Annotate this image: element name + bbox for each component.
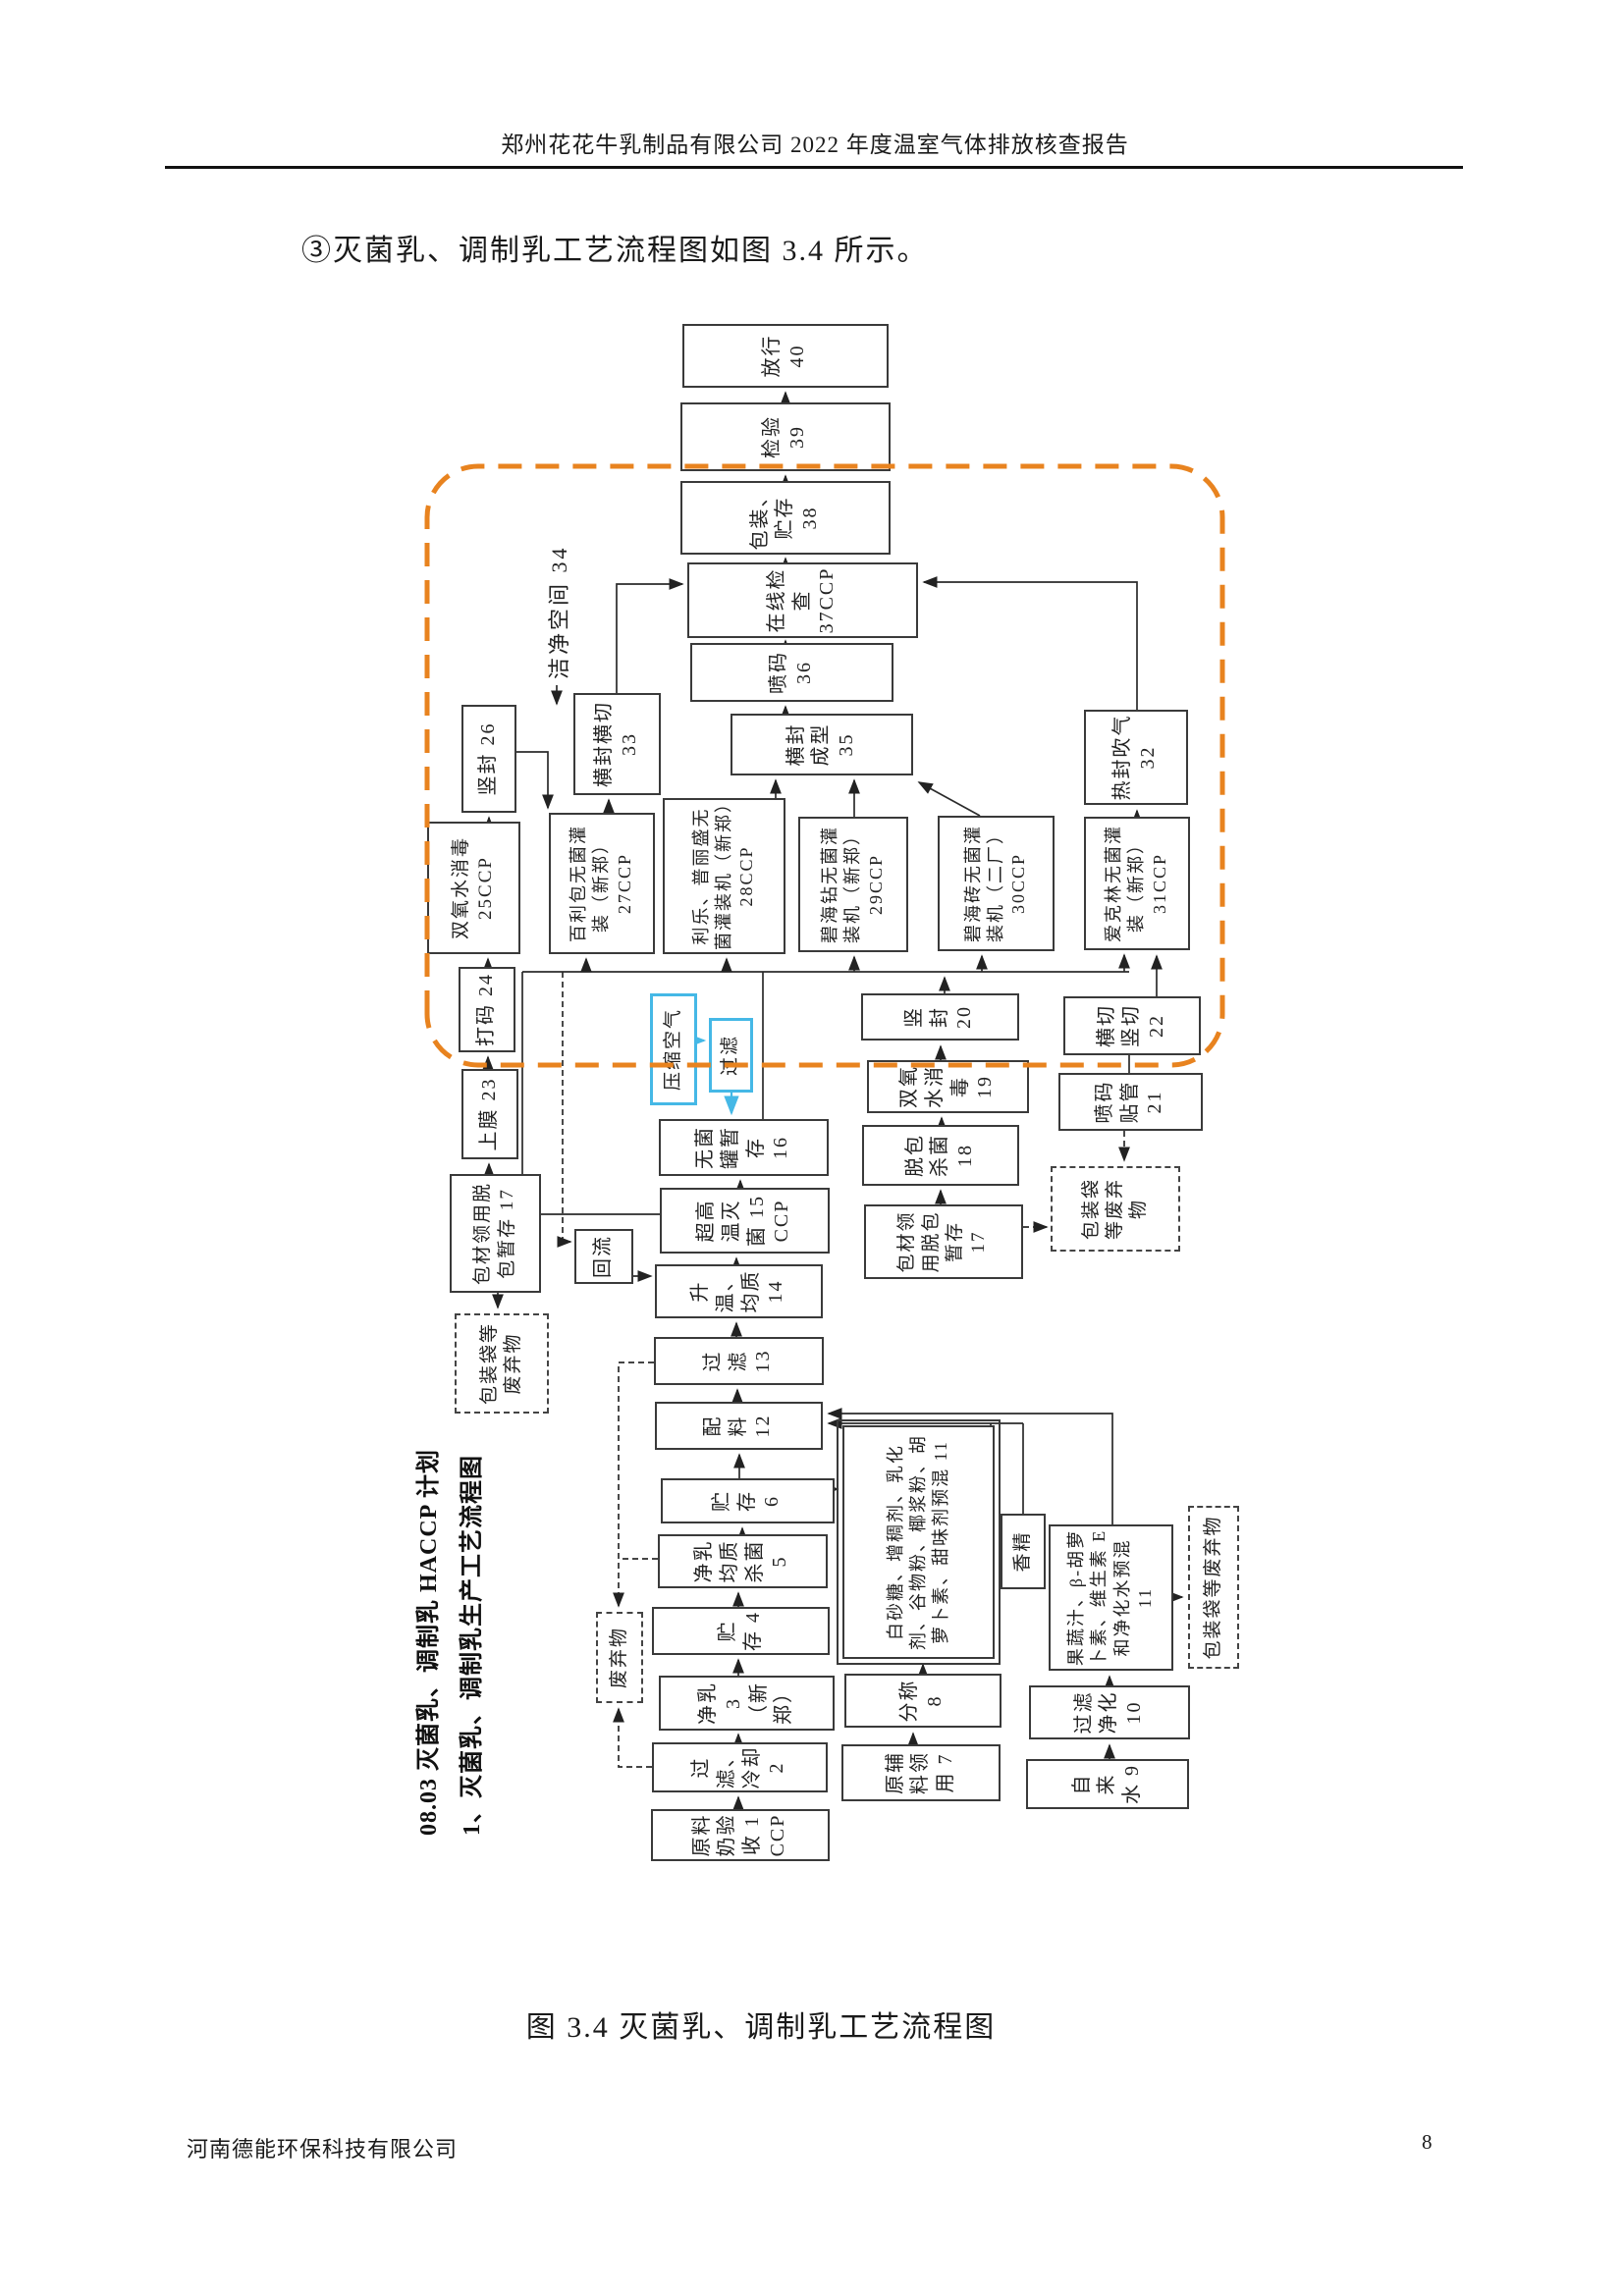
flow-box-release-40: 放行 40 [682,324,889,388]
flow-box-online-check-37: 在线检查 37CCP [687,562,918,638]
footer-page-number: 8 [1422,2130,1433,2155]
flow-box-pack-store-38: 包装、贮存 38 [680,481,891,555]
flow-box-film-on-23: 上膜 23 [461,1069,518,1159]
flow-box-store-4: 贮存 4 [652,1607,830,1655]
flow-box-premix-sugar-11: 白砂糖、增稠剂、乳化剂、谷物粉、椰浆粉、胡萝卜素、甜味剂预混 11 [842,1425,995,1659]
flow-box-waste-bags-left: 包装袋等废弃物 [455,1313,549,1414]
report-page: { "page": { "header": "郑州花花牛乳制品有限公司 2022… [0,0,1624,2296]
flow-box-inkjet-straw-21: 喷码贴管 21 [1058,1073,1203,1131]
flow-box-packmat-store-17-right: 包材领用脱包暂存 17 [864,1204,1023,1279]
flow-box-waste-bags-right: 包装袋等废弃物 [1051,1166,1180,1252]
flow-box-ecolean-fill-31: 爱克林无菌灌装（新郑）31CCP [1084,817,1190,950]
flow-box-packmat-store-17-left: 包材领用脱包暂存 17 [450,1174,541,1293]
flow-box-crosscut-vertcut-22: 横切竖切 22 [1063,996,1201,1055]
footer-company: 河南德能环保科技有限公司 [187,2132,458,2163]
flow-title-line1: 08.03 灭菌乳、调制乳 HACCP 计划 [408,1449,443,1836]
flow-box-bailibao-fill-27: 百利包无菌灌装（新郑）27CCP [549,813,655,954]
flow-box-essence: 香精 [1001,1514,1046,1589]
flow-landscape: 08.03 灭菌乳、调制乳 HACCP 计划 1、灭菌乳、调制乳生产工艺流程图 … [285,324,1257,1895]
flow-box-inspect-39: 检验 39 [680,402,891,471]
flow-box-reflux: 回流 [574,1229,633,1284]
flow-box-aseptic-tank-16: 无菌罐暂存 16 [659,1119,829,1176]
flow-box-crossseal-crosscut-33: 横封横切 33 [573,693,661,795]
flow-title-line2: 1、灭菌乳、调制乳生产工艺流程图 [452,1455,486,1836]
flow-box-inkjet-36: 喷码 36 [690,643,893,702]
clean-space-label: 洁净空间 34 [542,545,573,679]
flow-box-uht-sterilize-15: 超高温灭菌 15 CCP [660,1188,830,1254]
header-rule [165,166,1463,169]
flow-box-tap-water-9: 自来水 9 [1026,1759,1189,1809]
flow-box-crossseal-form-35: 横封成型 35 [731,714,913,775]
flow-box-receive-1: 原料奶验收 1 CCP [651,1809,830,1861]
flow-box-raw-aux-material-7: 原辅料领用 7 [841,1744,1001,1801]
flow-box-vertical-seal-26: 竖封 26 [461,705,516,813]
page-header: 郑州花花牛乳制品有限公司 2022 年度温室气体排放核查报告 [167,126,1463,159]
flow-box-waste-bags-bottom: 包装袋等废弃物 [1188,1506,1239,1669]
flow-box-compressed-air: 压缩空气 [650,993,697,1105]
flow-box-debag-sterilize-18: 脱包杀菌 18 [862,1125,1019,1186]
process-flow-diagram: 08.03 灭菌乳、调制乳 HACCP 计划 1、灭菌乳、调制乳生产工艺流程图 … [285,324,1257,1895]
flow-box-peroxide-sterilize-25: 双氧水消毒 25CCP [427,822,520,954]
flow-box-peroxide-sterilize-19: 双氧水消毒 19 [867,1060,1029,1113]
flow-box-store-6: 贮存 6 [661,1478,835,1523]
flow-box-clarify-homo-sterilize-5: 净乳均质杀菌 5 [658,1534,828,1588]
flow-box-filter-13: 过滤 13 [654,1337,824,1385]
flow-box-heat-homogenize-14: 升温、均质 14 [655,1264,823,1318]
flow-box-waste-mid: 废弃物 [596,1612,643,1703]
flow-box-weigh-8: 分称 8 [844,1674,1001,1728]
flow-box-filter-cool-2: 过滤、冷却 2 [652,1742,828,1792]
flow-box-heatseal-blow-32: 热封吹气 32 [1084,710,1188,805]
figure-caption: 图 3.4 灭菌乳、调制乳工艺流程图 [270,2002,1252,2046]
flow-box-code-24: 打码 24 [459,967,515,1052]
flow-box-filter-purify-10: 过滤净化 10 [1029,1685,1190,1739]
flow-box-tetra-presont-fill-28: 利乐、普丽盛无菌灌装机（新郑）28CCP [663,798,785,954]
flow-box-bihai-brick-fill-30: 碧海砖无菌灌装机（二厂）30CCP [938,816,1055,951]
flow-box-vertical-seal-20: 竖封 20 [861,993,1019,1041]
flow-box-premix-juice-11: 果蔬汁、β-胡萝卜素、维生素 E 和净化水预混 11 [1049,1524,1173,1671]
flow-box-bihai-diamond-fill-29: 碧海钻无菌灌装机（新郑）29CCP [798,817,908,952]
flow-box-air-filter: 过滤 [709,1018,753,1093]
body-paragraph: ③灭菌乳、调制乳工艺流程图如图 3.4 所示。 [301,226,929,269]
flow-box-clarify-3: 净乳 3（新郑） [659,1676,835,1731]
flow-box-mix-12: 配料 12 [655,1402,823,1450]
